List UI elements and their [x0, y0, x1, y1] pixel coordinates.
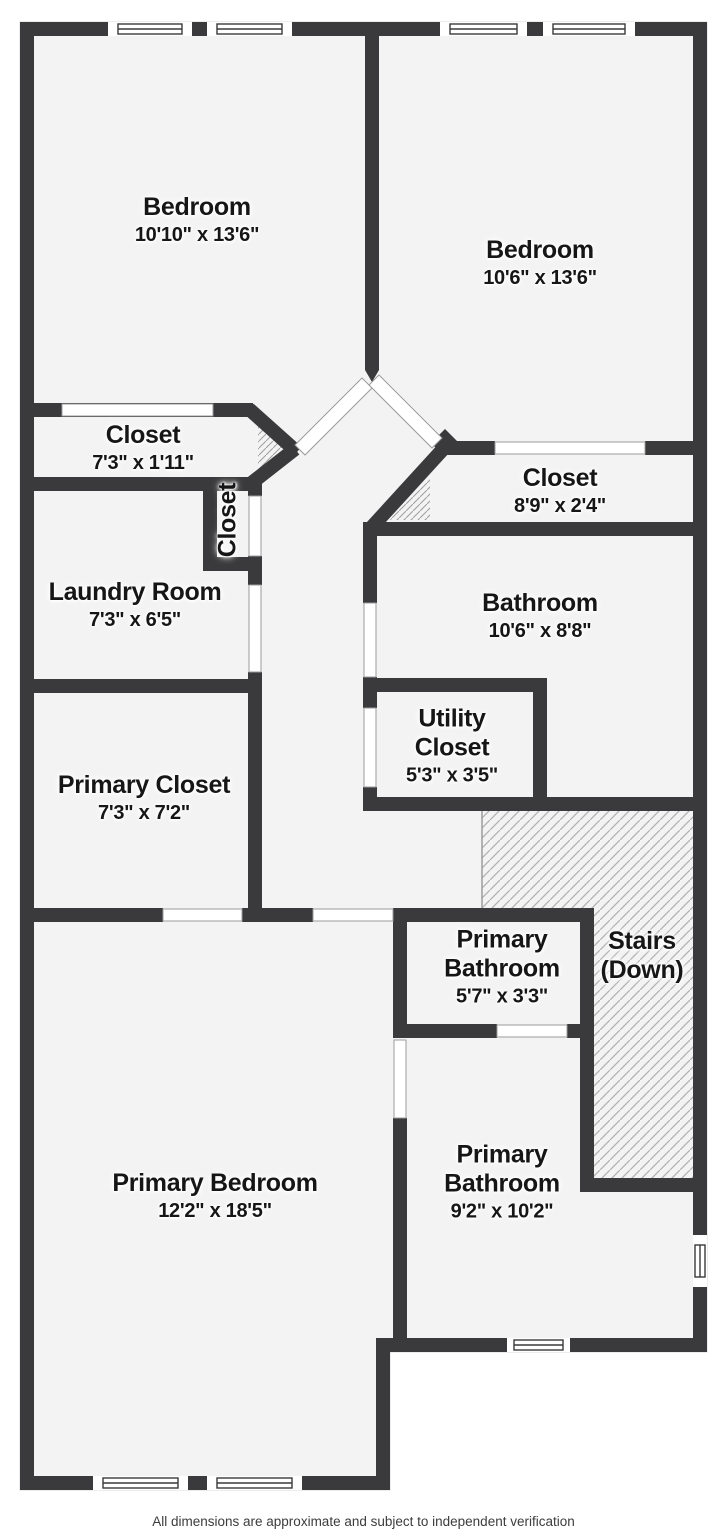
utility-closet-dimensions: 5'3" x 3'5"	[406, 763, 498, 790]
room-label-primary-closet: Primary Closet7'3" x 7'2"	[58, 771, 230, 827]
primary-bathroom-2-dimensions: 9'2" x 10'2"	[444, 1199, 560, 1226]
bedroom-1-name: Bedroom	[135, 193, 259, 222]
room-label-utility-closet: UtilityCloset5'3" x 3'5"	[406, 705, 498, 790]
bathroom-name: Bathroom	[482, 589, 598, 618]
bedroom-1-dimensions: 10'10" x 13'6"	[135, 222, 259, 249]
laundry-room-name: Laundry Room	[49, 578, 222, 607]
bedroom-2-dimensions: 10'6" x 13'6"	[483, 265, 597, 292]
floor-plan-drawing	[0, 0, 727, 1536]
primary-bathroom-2-name: Bathroom	[444, 1170, 560, 1199]
closet-1-name: Closet	[92, 421, 194, 450]
room-label-stairs: Stairs(Down)	[601, 927, 684, 985]
primary-bathroom-1-name: Bathroom	[444, 955, 560, 984]
disclaimer-text: All dimensions are approximate and subje…	[0, 1514, 727, 1529]
primary-bathroom-1-name: Primary	[444, 926, 560, 955]
room-label-bathroom: Bathroom10'6" x 8'8"	[482, 589, 598, 645]
room-label-closet-2: Closet8'9" x 2'4"	[514, 464, 606, 520]
room-label-bedroom-2: Bedroom10'6" x 13'6"	[483, 236, 597, 292]
closet-1-dimensions: 7'3" x 1'11"	[92, 450, 194, 477]
closet-2-name: Closet	[514, 464, 606, 493]
utility-closet-name: Closet	[406, 734, 498, 763]
primary-closet-dimensions: 7'3" x 7'2"	[58, 800, 230, 827]
bedroom-2-name: Bedroom	[483, 236, 597, 265]
room-label-hall-closet: Closet	[214, 483, 243, 558]
room-label-primary-bedroom: Primary Bedroom12'2" x 18'5"	[112, 1169, 317, 1225]
closet-2-dimensions: 8'9" x 2'4"	[514, 493, 606, 520]
primary-closet-name: Primary Closet	[58, 771, 230, 800]
primary-bedroom-name: Primary Bedroom	[112, 1169, 317, 1198]
stairs-name: Stairs	[601, 927, 684, 956]
room-label-primary-bathroom-1: PrimaryBathroom5'7" x 3'3"	[444, 926, 560, 1011]
laundry-room-dimensions: 7'3" x 6'5"	[49, 607, 222, 634]
room-label-primary-bathroom-2: PrimaryBathroom9'2" x 10'2"	[444, 1141, 560, 1226]
room-label-laundry-room: Laundry Room7'3" x 6'5"	[49, 578, 222, 634]
primary-bathroom-2-name: Primary	[444, 1141, 560, 1170]
utility-closet-name: Utility	[406, 705, 498, 734]
bathroom-dimensions: 10'6" x 8'8"	[482, 618, 598, 645]
room-label-closet-1: Closet7'3" x 1'11"	[92, 421, 194, 477]
room-label-bedroom-1: Bedroom10'10" x 13'6"	[135, 193, 259, 249]
floor-plan-page: Bedroom10'10" x 13'6"Bedroom10'6" x 13'6…	[0, 0, 727, 1536]
hall-closet-name: Closet	[214, 483, 243, 558]
primary-bedroom-dimensions: 12'2" x 18'5"	[112, 1198, 317, 1225]
stairs-name: (Down)	[601, 956, 684, 985]
primary-bathroom-1-dimensions: 5'7" x 3'3"	[444, 984, 560, 1011]
